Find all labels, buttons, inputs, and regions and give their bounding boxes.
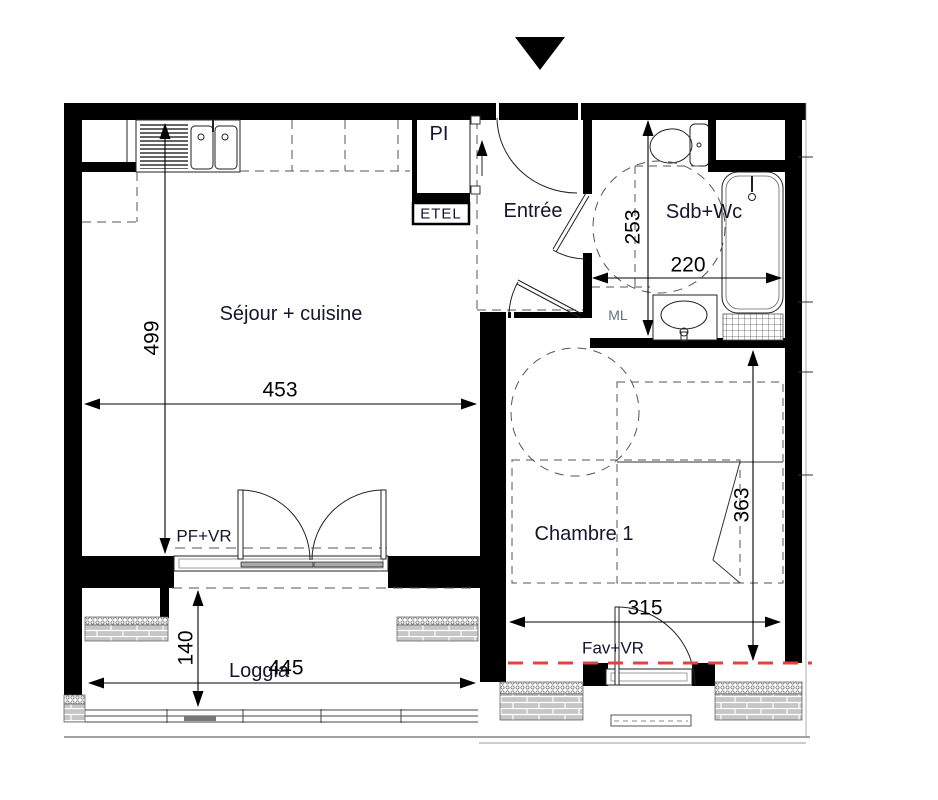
room-label-sejour: Séjour + cuisine (220, 304, 363, 324)
toilet (648, 124, 709, 166)
wall-loggia-post (160, 588, 169, 618)
room-label-entree: Entrée (504, 201, 563, 221)
loggia-railing (85, 709, 478, 723)
kitchen-counter (127, 120, 240, 172)
washbasin (653, 295, 717, 341)
dim-label-220: 220 (670, 255, 705, 276)
outer-sill (611, 715, 691, 726)
wall-duct-bottom (708, 160, 802, 172)
turning-circle-bedroom (511, 348, 639, 476)
wall-west (64, 103, 82, 695)
window-label-fav-vr: Fav+VR (582, 640, 644, 657)
furniture-outline (512, 460, 740, 583)
wall-entree-east-upper (583, 118, 592, 194)
wall-entree-south (508, 312, 585, 318)
kitchen-drainer (140, 124, 188, 169)
floor-plan-svg (0, 0, 938, 800)
boundary-handle (471, 116, 480, 124)
closet-label-pi: PI (430, 124, 449, 144)
room-label-sdb: Sdb+Wc (666, 202, 742, 222)
shower-tile-mat (723, 314, 783, 340)
wall-south-right (388, 556, 480, 588)
dim-label-140: 140 (176, 630, 197, 665)
boundary-handle (471, 186, 480, 194)
door-leaf (381, 490, 386, 559)
dim-label-499: 499 (142, 320, 163, 355)
washing-machine-label: ML (608, 308, 627, 322)
wall-pi-left (412, 120, 417, 203)
door-leaf (238, 490, 243, 559)
dim-label-363: 363 (732, 487, 753, 522)
bed-outline (617, 382, 783, 583)
dim-label-453: 453 (262, 380, 297, 401)
wall-divider (480, 312, 506, 682)
wall-north (64, 103, 806, 120)
bathtub (722, 172, 783, 313)
walls (64, 103, 806, 695)
railing-post-mark (184, 716, 216, 721)
etel-label: ETEL (420, 207, 462, 222)
wall-east (785, 103, 802, 663)
wall-kitchen-stub (64, 162, 138, 172)
wall-south-left (64, 556, 174, 588)
dim-label-253: 253 (623, 209, 644, 244)
room-label-chambre: Chambre 1 (535, 524, 634, 544)
wall-window-jamb-left (583, 663, 608, 686)
entrance-door-swing (497, 118, 577, 193)
wall-entree-east-lower (583, 253, 592, 318)
wall-etel-top (412, 193, 470, 203)
floor-plan: Séjour + cuisine Entrée Sdb+Wc Chambre 1… (0, 0, 938, 800)
entrance-marker-icon (515, 37, 565, 70)
dim-label-445: 445 (268, 658, 303, 679)
dim-label-315: 315 (627, 598, 662, 619)
window-label-pf-vr: PF+VR (176, 528, 231, 545)
